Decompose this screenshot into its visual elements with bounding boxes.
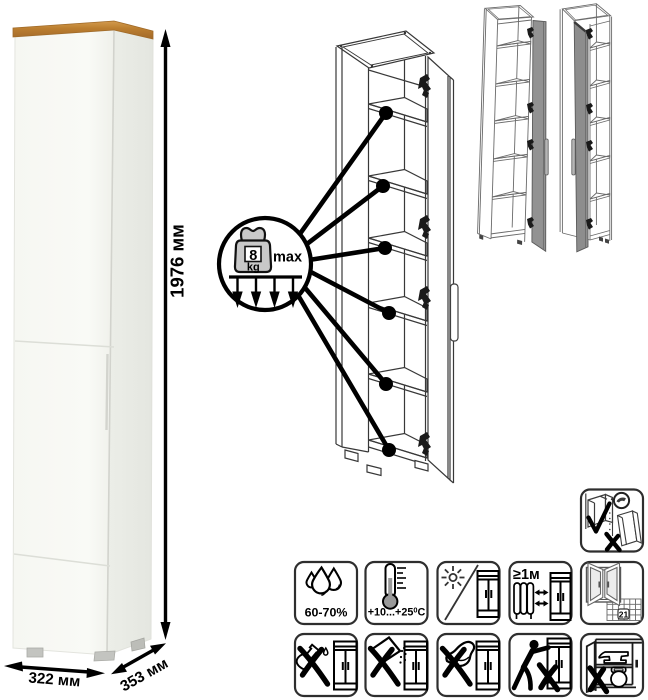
svg-text:322 мм: 322 мм xyxy=(28,669,81,690)
svg-text:≥1м: ≥1м xyxy=(513,567,540,583)
svg-text:60-70%: 60-70% xyxy=(305,606,348,620)
svg-text:21: 21 xyxy=(619,609,629,619)
svg-text:+10...+250С: +10...+250С xyxy=(368,605,426,618)
svg-text:kg: kg xyxy=(247,262,260,274)
svg-text:max: max xyxy=(273,250,302,266)
svg-text:353 мм: 353 мм xyxy=(117,655,171,695)
svg-text:1976 мм: 1976 мм xyxy=(167,224,188,298)
